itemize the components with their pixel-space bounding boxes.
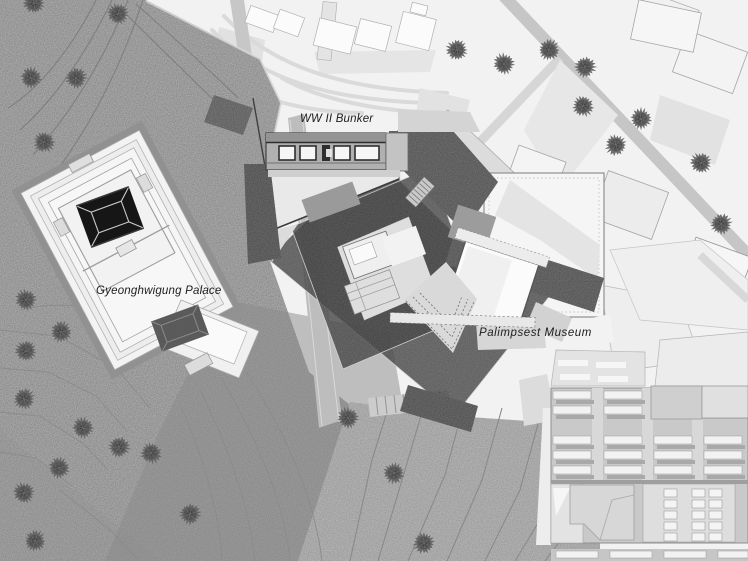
- svg-text:WW II Bunker: WW II Bunker: [300, 113, 374, 125]
- svg-text:Palimpsest Museum: Palimpsest Museum: [479, 327, 592, 339]
- svg-text:Gyeonghwigung Palace: Gyeonghwigung Palace: [96, 285, 221, 297]
